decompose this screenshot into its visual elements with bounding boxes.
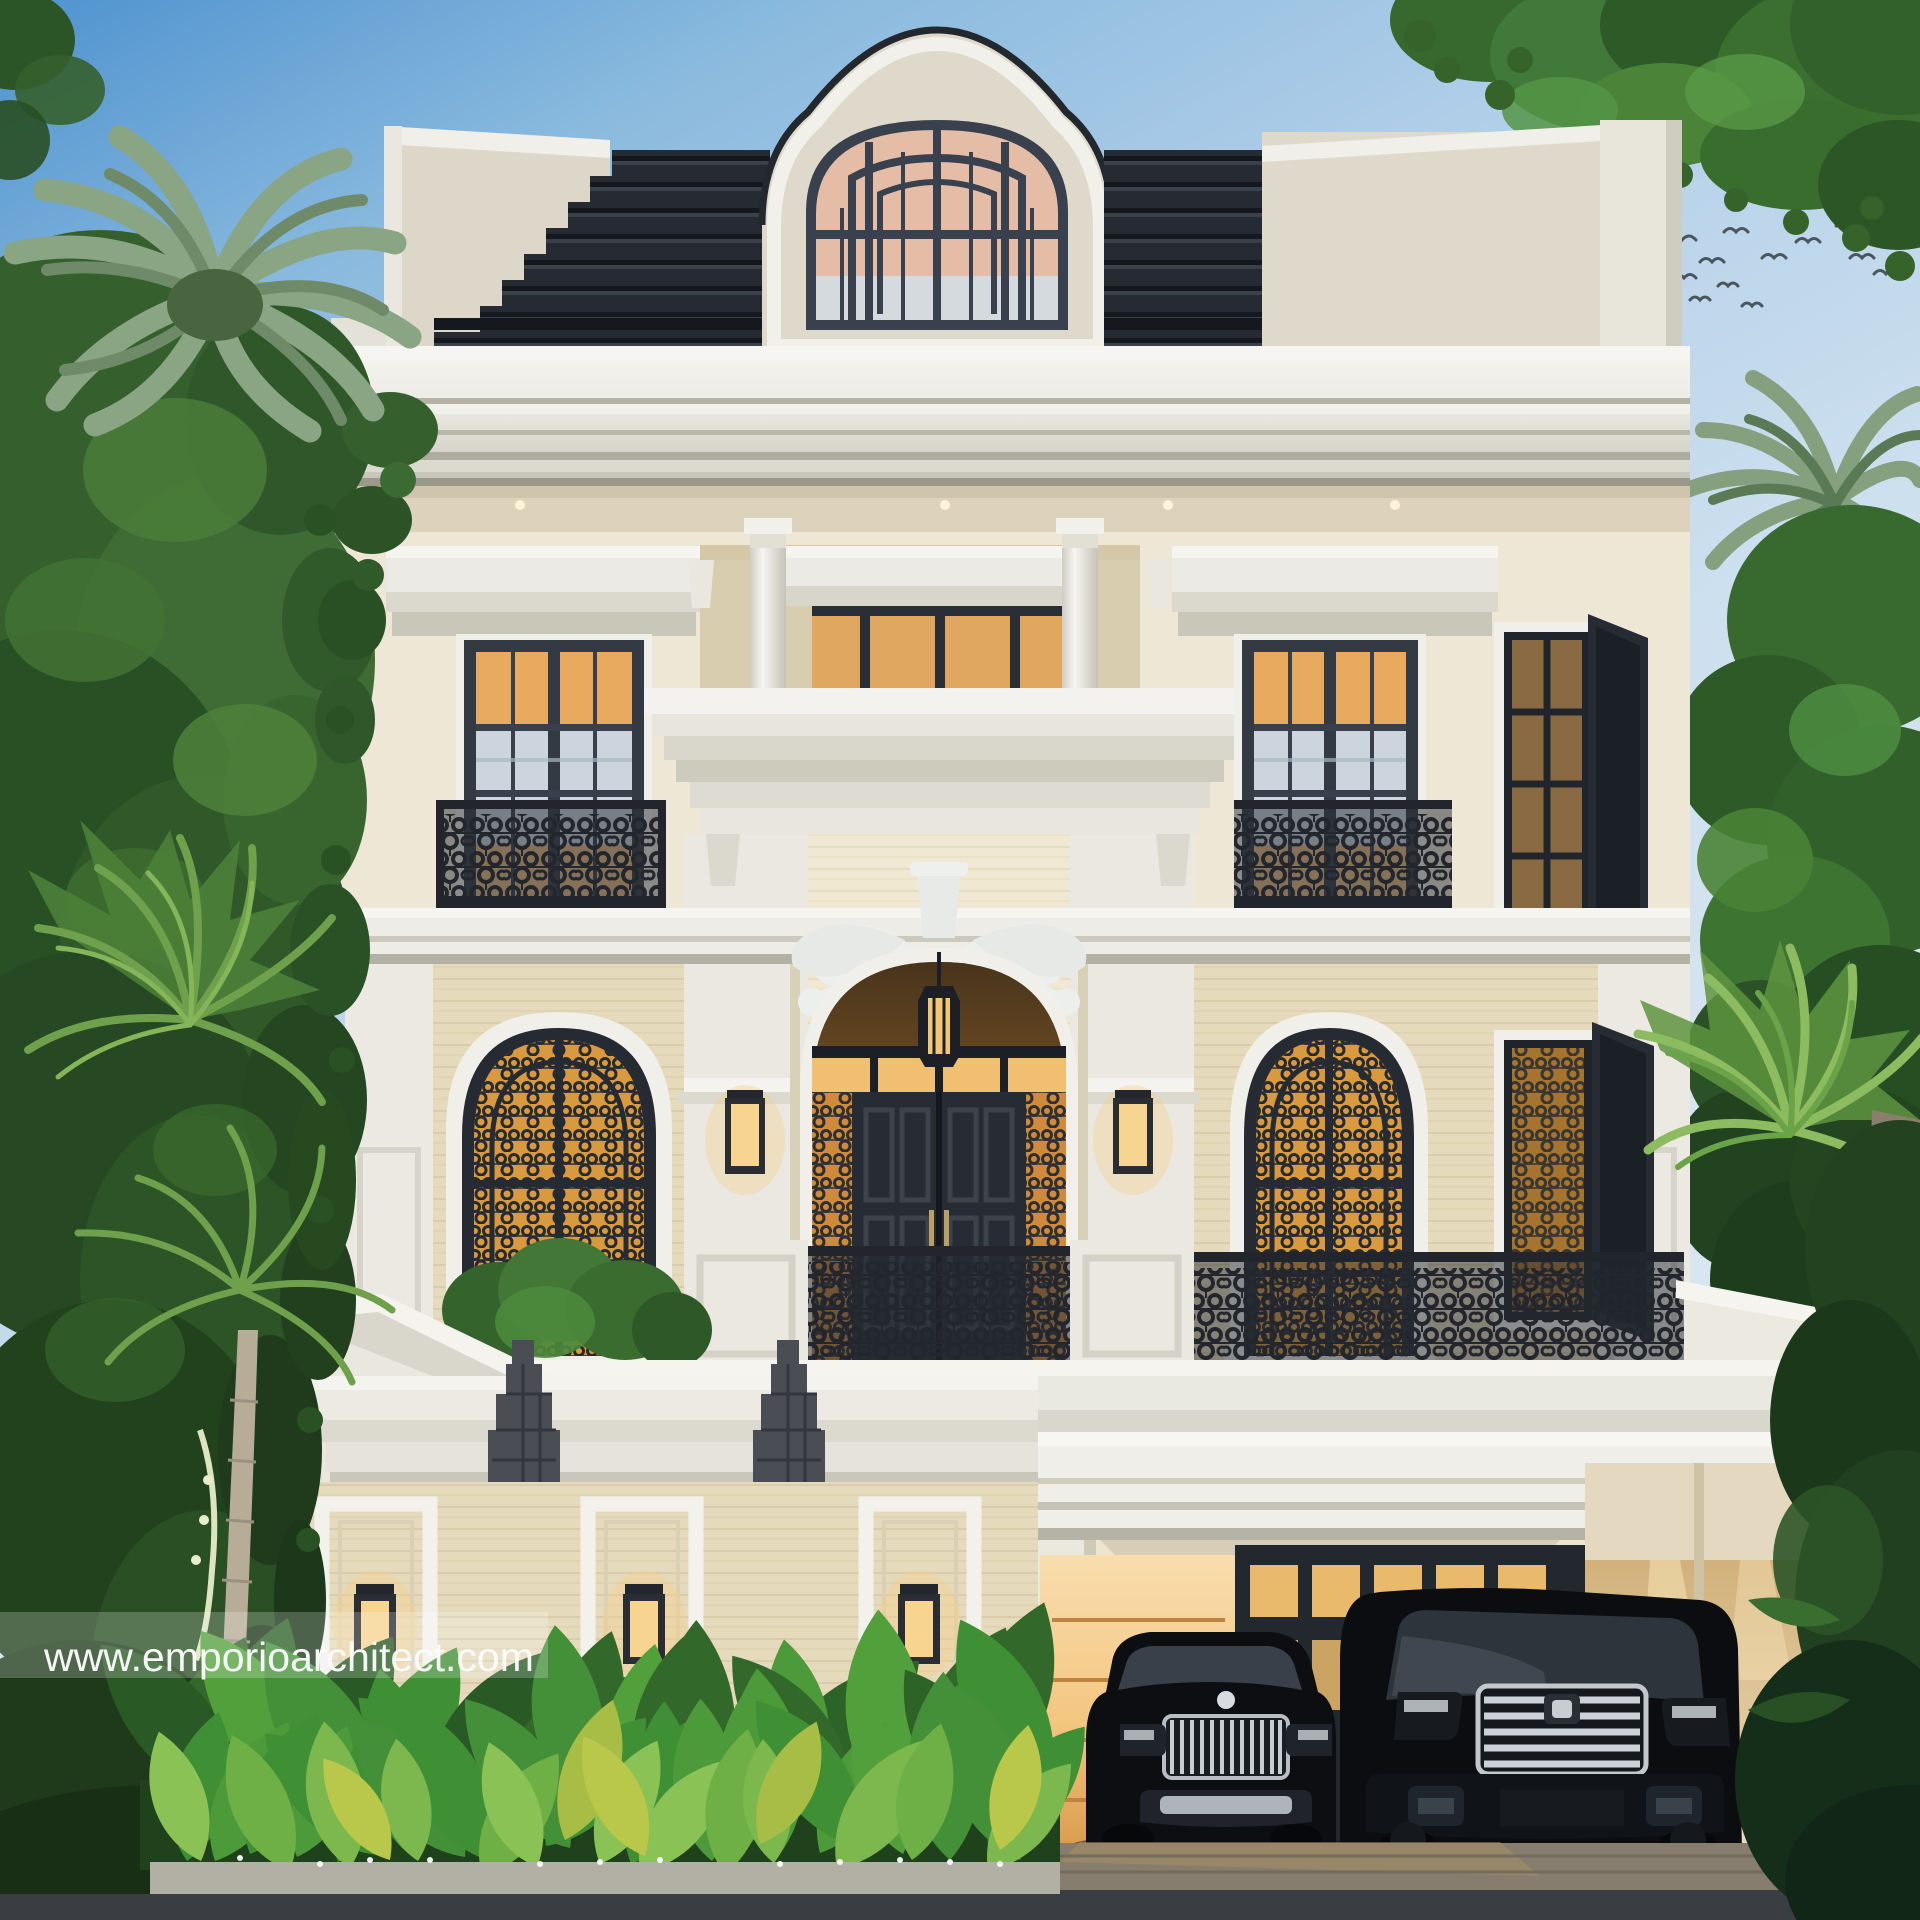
svg-text:www.emporioarchitect.com: www.emporioarchitect.com: [43, 1634, 534, 1680]
